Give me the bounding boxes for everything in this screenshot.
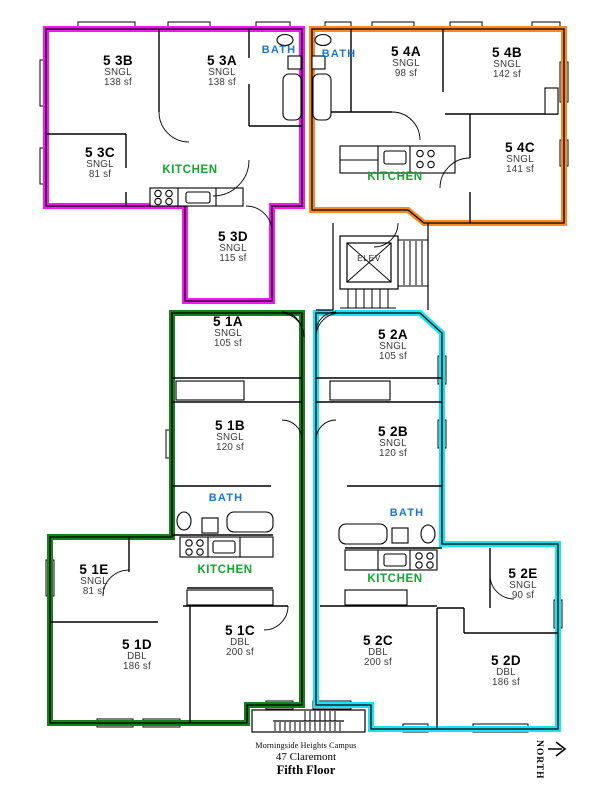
room-area: 90 sf <box>508 591 537 601</box>
room-name: 5 1A <box>213 315 243 329</box>
room-label-5-1E: 5 1E SNGL 81 sf <box>79 563 108 597</box>
room-area: 200 sf <box>363 658 393 668</box>
room-name: 5 1E <box>79 563 108 577</box>
room-name: 5 4A <box>391 45 421 59</box>
stair-treads-east <box>404 241 422 285</box>
room-label-5-1B: 5 1B SNGL 120 sf <box>215 419 245 453</box>
title-block: Morningside Heights Campus 47 Claremont … <box>255 741 356 778</box>
room-area: 120 sf <box>215 443 245 453</box>
room-name: 5 2B <box>378 425 408 439</box>
room-area: 105 sf <box>213 339 243 349</box>
elevator-core <box>316 223 428 310</box>
kitchen-label-suite3: KITCHEN <box>162 164 217 176</box>
room-name: 5 1C <box>225 624 255 638</box>
north-arrow-icon <box>546 740 570 758</box>
room-label-5-4A: 5 4A SNGL 98 sf <box>391 45 421 79</box>
room-area: 81 sf <box>79 587 108 597</box>
room-name: 5 3B <box>103 54 133 68</box>
kitchen-4-fixtures <box>340 146 455 173</box>
elevator-label: ELEV <box>357 253 381 263</box>
bath-label-suite3: BATH <box>262 44 297 56</box>
campus-name: Morningside Heights Campus <box>255 741 356 750</box>
room-label-5-1D: 5 1D DBL 186 sf <box>122 638 152 672</box>
kitchen-label-suite1: KITCHEN <box>197 564 252 576</box>
bath-label-suite4: BATH <box>322 48 357 60</box>
room-name: 5 2C <box>363 634 393 648</box>
room-name: 5 3C <box>85 146 115 160</box>
room-label-5-1A: 5 1A SNGL 105 sf <box>213 315 243 349</box>
kitchen-3-fixtures <box>150 188 243 206</box>
room-label-5-2D: 5 2D DBL 186 sf <box>491 654 521 688</box>
building-name: 47 Claremont <box>255 751 356 763</box>
room-name: 5 3D <box>218 230 248 244</box>
room-label-5-1C: 5 1C DBL 200 sf <box>225 624 255 658</box>
room-area: 115 sf <box>218 254 248 264</box>
bath-2-fixtures <box>339 524 435 544</box>
room-area: 186 sf <box>122 662 152 672</box>
bottom-stairs <box>252 710 365 732</box>
room-name: 5 4C <box>505 141 535 155</box>
room-area: 120 sf <box>378 449 408 459</box>
room-label-5-2C: 5 2C DBL 200 sf <box>363 634 393 668</box>
room-name: 5 2D <box>491 654 521 668</box>
kitchen-1-fixtures <box>180 537 273 557</box>
bath-1-fixtures <box>177 512 273 533</box>
room-label-5-2E: 5 2E SNGL 90 sf <box>508 567 537 601</box>
room-area: 105 sf <box>378 352 408 362</box>
room-area: 142 sf <box>492 70 522 80</box>
room-label-5-2B: 5 2B SNGL 120 sf <box>378 425 408 459</box>
north-label: NORTH <box>534 740 544 780</box>
room-label-5-3C: 5 3C SNGL 81 sf <box>85 146 115 180</box>
room-area: 141 sf <box>505 165 535 175</box>
bath-label-suite1: BATH <box>209 492 244 504</box>
kitchen-label-suite2: KITCHEN <box>367 573 422 585</box>
north-indicator: NORTH <box>534 738 568 786</box>
room-name: 5 4B <box>492 46 522 60</box>
room-label-5-3D: 5 3D SNGL 115 sf <box>218 230 248 264</box>
floorplan-page: 5 3B SNGL 138 sf 5 3A SNGL 138 sf 5 3C S… <box>0 0 612 792</box>
room-label-5-2A: 5 2A SNGL 105 sf <box>378 328 408 362</box>
room-name: 5 1B <box>215 419 245 433</box>
room-label-5-4C: 5 4C SNGL 141 sf <box>505 141 535 175</box>
floor-name: Fifth Floor <box>255 763 356 778</box>
stair-treads-south <box>348 289 388 308</box>
room-label-5-4B: 5 4B SNGL 142 sf <box>492 46 522 80</box>
room-area: 138 sf <box>207 78 237 88</box>
room-area: 98 sf <box>391 69 421 79</box>
room-label-5-3B: 5 3B SNGL 138 sf <box>103 54 133 88</box>
kitchen-label-suite4: KITCHEN <box>367 171 422 183</box>
room-area: 200 sf <box>225 648 255 658</box>
bath-label-suite2: BATH <box>390 507 425 519</box>
room-area: 81 sf <box>85 170 115 180</box>
room-area: 186 sf <box>491 678 521 688</box>
room-name: 5 2A <box>378 328 408 342</box>
room-name: 5 2E <box>508 567 537 581</box>
room-label-5-3A: 5 3A SNGL 138 sf <box>207 54 237 88</box>
kitchen-2-fixtures <box>345 550 437 570</box>
room-name: 5 3A <box>207 54 237 68</box>
room-name: 5 1D <box>122 638 152 652</box>
room-area: 138 sf <box>103 78 133 88</box>
